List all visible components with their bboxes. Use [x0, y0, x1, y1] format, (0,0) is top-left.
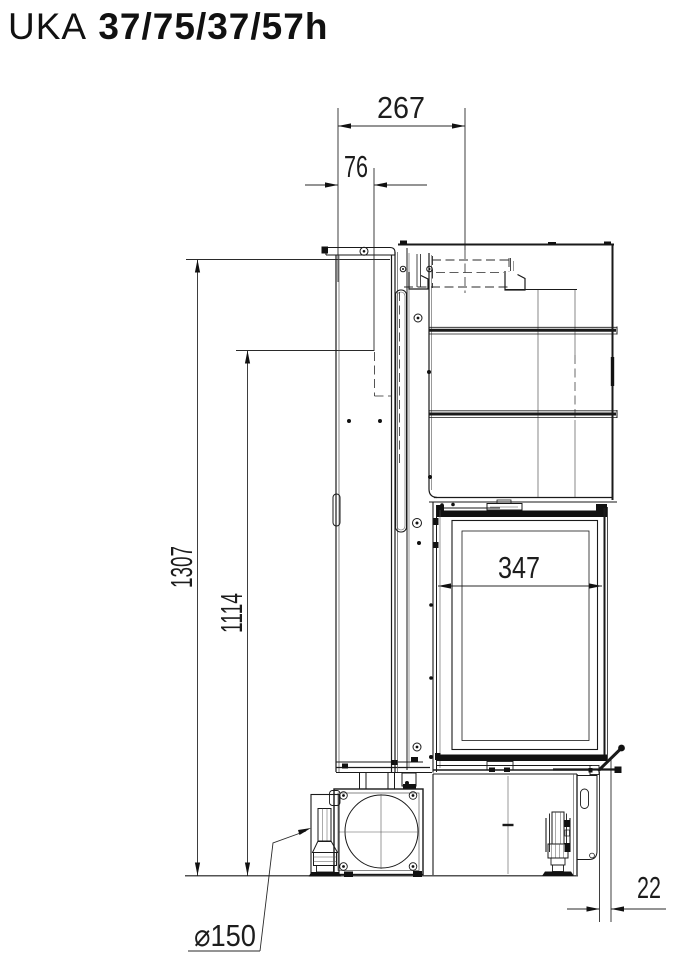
dimension-overall-height-1307: 1307: [164, 260, 390, 876]
lift-rail: [395, 248, 422, 772]
door-guide-track: [433, 502, 441, 773]
left-adjustable-foot: [309, 791, 342, 877]
firebox-door: [433, 500, 625, 775]
callout-air-inlet-d150: ⌀150: [188, 828, 311, 953]
dim-22-label: 22: [637, 870, 661, 905]
dim-76-label: 76: [344, 149, 368, 184]
convection-rail-lower: [429, 410, 617, 418]
base-assembly: [185, 774, 597, 877]
dimension-glass-width-347: 347: [438, 550, 602, 589]
dim-347-label: 347: [498, 550, 540, 585]
back-frame: [322, 247, 433, 790]
dimension-top-depth-267: 267: [338, 90, 465, 282]
door-top-bar: [437, 511, 607, 518]
dimension-connection-height-1114: 1114: [214, 351, 374, 876]
right-adjustable-foot: [542, 812, 574, 876]
air-inlet-fan-box: [334, 789, 423, 877]
dim-1307-label: 1307: [164, 546, 199, 588]
door-bottom-bar: [437, 755, 607, 762]
dim-d150-label: ⌀150: [194, 918, 256, 953]
drawing-page: UKA 37/75/37/57h 267 76 1307: [0, 0, 684, 961]
technical-drawing: 267 76 1307 1114 347: [0, 0, 684, 961]
dim-267-label: 267: [377, 90, 425, 125]
dim-1114-label: 1114: [214, 593, 249, 633]
handle-knob: [618, 745, 625, 752]
convection-rail-upper: [429, 327, 617, 335]
hidden-flue-outlet: [404, 250, 509, 293]
air-inlet-circle: [345, 795, 418, 868]
base-side-panel: [577, 776, 597, 860]
dimension-front-protrusion-22: 22: [567, 757, 666, 922]
